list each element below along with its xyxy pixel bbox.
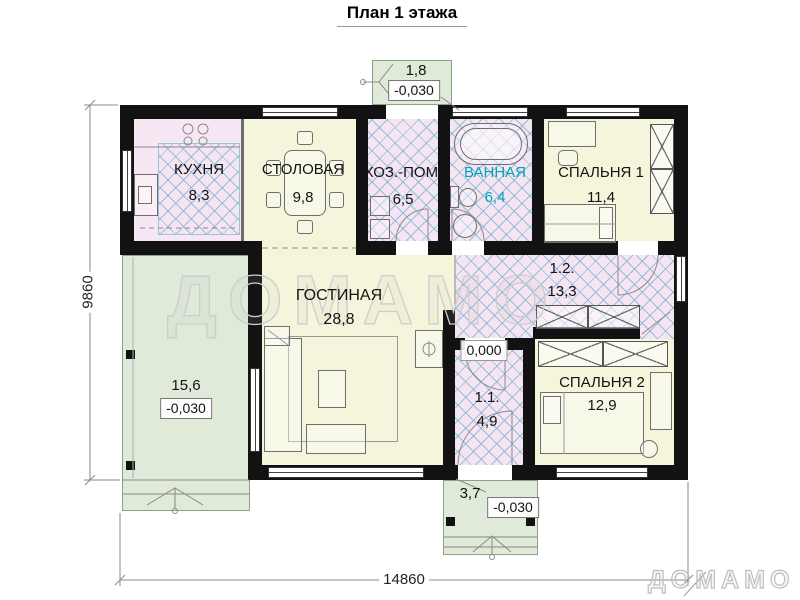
stool-icon <box>640 440 658 458</box>
room-label-corridor: 1.2. <box>549 261 574 276</box>
room-area-bedroom1: 11,4 <box>587 190 615 205</box>
partition-kitchen-dining <box>241 119 244 241</box>
dining-living-opening <box>262 241 356 255</box>
floor-plan: План 1 этажа <box>0 0 800 600</box>
sofa-icon <box>306 424 366 454</box>
door-porch-top <box>386 105 438 119</box>
room-area-bathroom: 6,4 <box>485 190 506 205</box>
dim-tick <box>85 100 95 110</box>
room-area-bedroom2: 12,9 <box>587 398 616 413</box>
chair-icon <box>297 220 313 234</box>
window-corridor <box>676 256 686 302</box>
porch-top-level-badge: -0,030 <box>388 80 440 101</box>
porch-top-area: 1,8 <box>406 63 427 78</box>
room-area-living: 28,8 <box>323 312 354 328</box>
door-utility <box>396 241 428 255</box>
room-label-dining: СТОЛОВАЯ <box>262 162 344 177</box>
porch-bottom-level-badge: -0,030 <box>487 497 539 518</box>
window-kitchen <box>122 150 132 212</box>
washer-icon <box>370 196 390 216</box>
wall-hall-bedroom2 <box>523 350 535 465</box>
dining-table-icon <box>284 150 326 216</box>
toilet-tank-icon <box>450 186 459 208</box>
terrace-post <box>126 350 135 359</box>
sofa-corner-icon <box>264 338 302 452</box>
window-dining <box>262 107 338 117</box>
brand-logo: ДОМАМО <box>648 566 794 595</box>
dim-tick <box>115 575 125 585</box>
marker-circle <box>361 80 366 85</box>
pillow-icon <box>543 396 561 424</box>
room-label-living: ГОСТИНАЯ <box>296 288 382 304</box>
dimension-height: 9860 <box>80 271 97 312</box>
door-bedroom1 <box>618 241 658 255</box>
desk-icon <box>548 121 596 147</box>
door-bathroom <box>452 241 484 255</box>
porch-post <box>526 517 535 526</box>
room-area-utility: 6,5 <box>393 192 414 207</box>
door-entrance <box>458 465 512 480</box>
terrace-post <box>126 461 135 470</box>
window-living-south <box>268 467 424 478</box>
window-living-terrace <box>250 368 260 452</box>
chair-icon <box>266 192 281 208</box>
room-label-bedroom1: СПАЛЬНЯ 1 <box>558 165 644 180</box>
room-label-bedroom2: СПАЛЬНЯ 2 <box>559 375 645 390</box>
porch-post <box>446 517 455 526</box>
room-hall <box>455 350 523 465</box>
terrace-area: 15,6 <box>171 378 200 393</box>
wall-bathroom-bedroom1 <box>532 119 544 241</box>
dimension-width: 14860 <box>379 571 429 588</box>
window-bedroom1 <box>566 107 640 117</box>
room-label-utility: ХОЗ.-ПОМ. <box>364 165 443 180</box>
dim-tick <box>85 475 95 485</box>
kitchen-sink-bowl-icon <box>138 186 152 204</box>
floor-level-badge: 0,000 <box>460 340 507 361</box>
wardrobe-icon <box>603 341 668 367</box>
utility-sink-icon <box>370 219 390 239</box>
room-area-dining: 9,8 <box>293 190 314 205</box>
room-area-hall: 4,9 <box>477 414 498 429</box>
wardrobe-icon <box>650 124 674 169</box>
chair-icon <box>329 192 344 208</box>
room-label-hall: 1.1. <box>474 390 499 405</box>
page-title: План 1 этажа <box>337 3 467 27</box>
pillow-icon <box>599 207 613 239</box>
wardrobe-icon <box>650 169 674 214</box>
wall-under-kitchen <box>120 241 262 255</box>
room-area-kitchen: 8,3 <box>189 188 210 203</box>
chair-icon <box>297 131 313 145</box>
window-bathroom <box>452 107 528 117</box>
terrace-level-badge: -0,030 <box>160 398 212 419</box>
bath-sink-icon <box>453 214 477 238</box>
room-area-corridor: 13,3 <box>547 284 576 299</box>
room-label-bathroom: ВАННАЯ <box>464 165 526 180</box>
coffee-table-icon <box>318 370 346 408</box>
room-label-kitchen: КУХНЯ <box>174 162 224 177</box>
bathtub-inner-icon <box>460 128 522 160</box>
wardrobe-icon <box>538 341 603 367</box>
window-bedroom2 <box>556 467 648 478</box>
toilet-icon <box>459 188 477 207</box>
closet-icon <box>588 305 640 329</box>
dresser-icon <box>650 372 672 430</box>
porch-bottom-area: 3,7 <box>460 486 481 501</box>
